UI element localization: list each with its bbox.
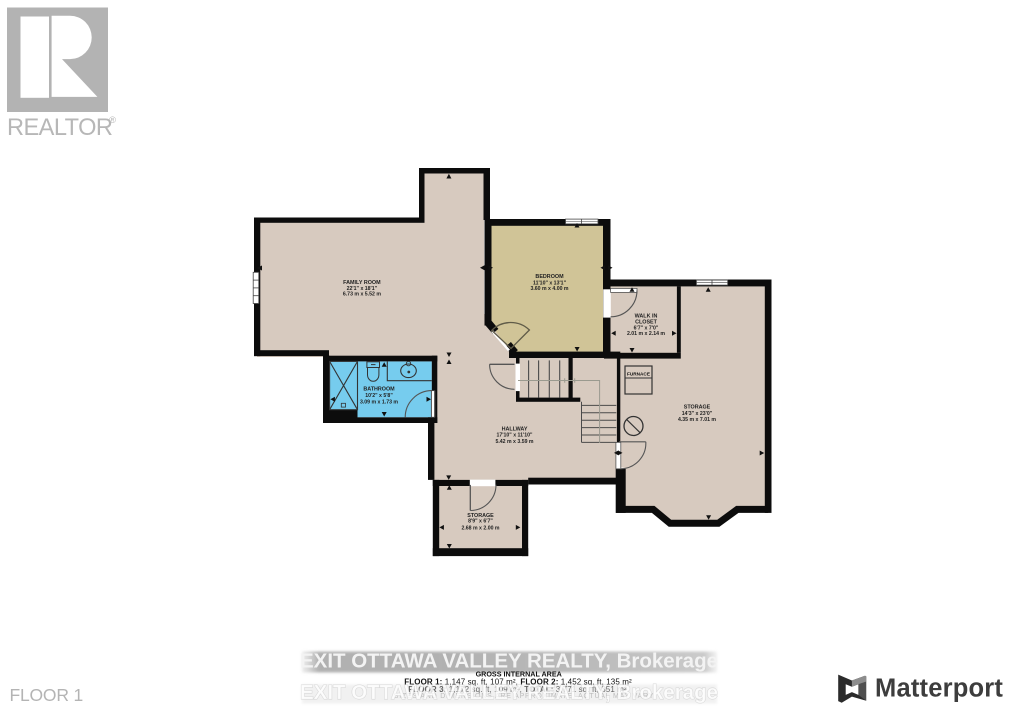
svg-text:HALLWAY: HALLWAY [502, 426, 528, 432]
svg-text:REALTOR: REALTOR [7, 115, 112, 141]
svg-text:EXIT OTTAWA VALLEY REALTY, Bro: EXIT OTTAWA VALLEY REALTY, Brokerage [300, 681, 718, 704]
svg-text:2.01 m x 2.14 m: 2.01 m x 2.14 m [627, 331, 665, 337]
svg-text:FURNACE: FURNACE [627, 372, 650, 377]
svg-text:4.35 m x 7.01 m: 4.35 m x 7.01 m [678, 417, 716, 423]
svg-text:17'10" x 11'10": 17'10" x 11'10" [497, 433, 533, 439]
svg-text:®: ® [109, 115, 116, 126]
svg-text:8'9" x 6'7": 8'9" x 6'7" [468, 519, 493, 525]
svg-text:2.68 m x 2.00 m: 2.68 m x 2.00 m [461, 525, 499, 531]
svg-text:5.42 m x 3.59 m: 5.42 m x 3.59 m [495, 439, 533, 445]
svg-text:Matterport: Matterport [875, 675, 1003, 703]
svg-text:3.09 m x 1.73 m: 3.09 m x 1.73 m [360, 399, 398, 405]
svg-text:STORAGE: STORAGE [684, 405, 711, 411]
svg-text:14'3" x 23'0": 14'3" x 23'0" [682, 411, 713, 417]
svg-text:BEDROOM: BEDROOM [535, 274, 564, 280]
svg-text:FLOOR 1: FLOOR 1 [10, 685, 83, 705]
svg-text:BATHROOM: BATHROOM [363, 387, 395, 393]
svg-text:10'2" x 5'8": 10'2" x 5'8" [365, 393, 393, 399]
svg-text:3.60 m x 4.00 m: 3.60 m x 4.00 m [530, 286, 568, 292]
svg-text:6.73 m x 5.52 m: 6.73 m x 5.52 m [343, 291, 381, 297]
